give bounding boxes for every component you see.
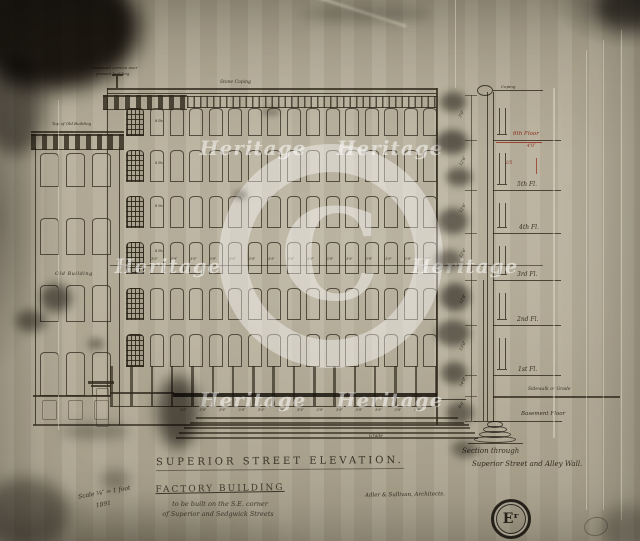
first-floor-line — [33, 395, 111, 397]
sill-line — [110, 406, 437, 407]
pilaster — [313, 366, 316, 406]
window — [306, 196, 320, 228]
bay-dim: 3'9″ — [385, 258, 392, 262]
window-note: 8 lts — [155, 120, 163, 124]
section-sill — [497, 134, 507, 135]
window — [287, 288, 301, 320]
old-window — [40, 218, 59, 255]
stain — [446, 168, 472, 186]
window — [404, 288, 418, 320]
bay-dim: 3'9″ — [317, 409, 324, 413]
section-basement-line — [474, 421, 562, 422]
window — [365, 150, 379, 182]
window — [306, 288, 320, 320]
column-shaft — [96, 388, 109, 427]
dim-value: 9'0″ — [458, 400, 466, 409]
crease — [455, 0, 456, 88]
window — [365, 108, 379, 136]
lintel-light — [110, 392, 174, 394]
dim-tick — [465, 140, 477, 141]
window — [209, 334, 223, 367]
dim-tick — [465, 190, 477, 191]
bay-dim: 3'9″ — [219, 409, 226, 413]
old-window — [66, 285, 85, 322]
grade-line — [33, 424, 469, 426]
window-detailed — [126, 334, 144, 367]
section-title-line1: Section through — [462, 448, 519, 456]
step-line — [184, 427, 470, 429]
pilaster — [354, 366, 357, 406]
footing-step — [474, 436, 516, 443]
window — [189, 196, 203, 228]
section-sill — [497, 319, 507, 320]
pilaster — [272, 366, 275, 406]
window — [170, 334, 184, 367]
old-left-edge — [35, 147, 36, 425]
window — [228, 108, 242, 136]
section-window-line — [499, 108, 500, 134]
elevation-title: Superior Street Elevation. — [156, 455, 404, 471]
bay-dim: 3'9″ — [151, 258, 158, 262]
lintel-heavy — [173, 393, 437, 397]
old-window — [92, 285, 111, 322]
window — [248, 196, 262, 228]
bay-dim: 3'9″ — [210, 258, 217, 262]
section-floor-line — [493, 233, 561, 234]
cornice-dentils — [187, 96, 437, 108]
window — [404, 150, 418, 182]
footing-step — [479, 431, 511, 438]
step-line — [176, 437, 478, 439]
crease — [621, 30, 622, 520]
window — [228, 196, 242, 228]
window — [365, 288, 379, 320]
bay-dim: 3'9″ — [297, 409, 304, 413]
old-right-edge — [119, 147, 120, 425]
top-note-line1: Proposed cornice over — [92, 66, 137, 70]
crease — [603, 40, 604, 510]
window — [170, 288, 184, 320]
window — [423, 150, 437, 182]
stain — [60, 424, 130, 438]
bay-dim: 3'9″ — [346, 258, 353, 262]
window — [228, 288, 242, 320]
old-basement-window — [42, 400, 57, 420]
section-coping-line — [493, 90, 543, 91]
stain — [595, 0, 640, 30]
dim-value: 12'6″ — [459, 156, 468, 167]
old-cornice-top-line — [31, 131, 124, 133]
pilaster — [415, 366, 418, 406]
old-window — [66, 352, 85, 396]
pilaster — [171, 366, 174, 406]
window — [404, 108, 418, 136]
window — [287, 196, 301, 228]
dim-value: 13'0″ — [459, 341, 468, 352]
pilaster — [374, 366, 377, 406]
stain — [88, 338, 104, 350]
section-sill — [497, 184, 507, 185]
window — [423, 334, 437, 367]
window — [189, 108, 203, 136]
old-window — [40, 352, 59, 396]
old-window — [66, 218, 85, 255]
window — [326, 108, 340, 136]
coping-label: Coping — [501, 85, 515, 89]
section-window-line — [505, 203, 506, 227]
old-window — [92, 153, 111, 187]
dim-tick — [465, 325, 477, 326]
window — [170, 108, 184, 136]
section-window-line — [505, 108, 506, 134]
window — [189, 150, 203, 182]
window — [248, 150, 262, 182]
window — [267, 150, 281, 182]
window — [150, 288, 164, 320]
window — [228, 150, 242, 182]
step-line — [179, 432, 475, 434]
window — [326, 334, 340, 367]
window-detailed — [126, 108, 144, 136]
pilaster — [435, 366, 438, 406]
dim-tick — [465, 396, 477, 397]
bay-dim: 3'9″ — [414, 409, 421, 413]
dim-chain — [471, 95, 472, 421]
red-tick — [536, 158, 537, 174]
window — [345, 334, 359, 367]
dim-value: 12'8″ — [459, 293, 468, 304]
red-dim-label: 4'0″ — [527, 145, 536, 150]
floor6-label-red: 6th Floor — [513, 131, 539, 137]
window-note: 8 lts — [155, 250, 163, 254]
window-note: 8 lts — [155, 162, 163, 166]
pencil-mark — [582, 515, 609, 539]
section-floor-line — [493, 280, 561, 281]
bay-dim: 3'9″ — [356, 409, 363, 413]
floor5-label: 5th Fl. — [517, 182, 537, 189]
window — [423, 288, 437, 320]
dim-value: 12'6″ — [459, 202, 468, 213]
window — [267, 334, 281, 367]
datum-line — [110, 265, 543, 266]
pilaster — [232, 366, 235, 406]
window — [248, 288, 262, 320]
old-window — [40, 153, 59, 187]
stain — [0, 478, 70, 541]
bay-dim: 3'9″ — [424, 258, 431, 262]
window — [345, 196, 359, 228]
crease-diagonal — [253, 0, 406, 28]
window — [209, 150, 223, 182]
parapet-line — [107, 88, 437, 90]
footing-base-line — [468, 443, 523, 444]
pilaster — [394, 366, 397, 406]
window — [189, 288, 203, 320]
window — [209, 108, 223, 136]
dim-value: 3'0″ — [458, 109, 466, 118]
window-detailed — [126, 288, 144, 320]
bay-dim: 3'9″ — [405, 258, 412, 262]
window — [306, 108, 320, 136]
window — [150, 334, 164, 367]
scale-note: Scale ⅛″ = 1 foot — [78, 485, 131, 501]
dim-value: 14'0″ — [459, 376, 468, 387]
window — [384, 108, 398, 136]
old-building-label: Old Building — [55, 272, 93, 278]
window — [209, 196, 223, 228]
window — [384, 288, 398, 320]
section-wall-thick — [483, 280, 484, 421]
section-window-line — [505, 338, 506, 369]
bay-dim: 3'9″ — [190, 258, 197, 262]
bay-dim: 3'9″ — [268, 258, 275, 262]
bay-dim: 3'9″ — [366, 258, 373, 262]
window — [170, 150, 184, 182]
floor4-label: 4th Fl. — [519, 225, 539, 232]
bay-dim: 3'9″ — [249, 258, 256, 262]
window — [306, 334, 320, 367]
window — [228, 334, 242, 367]
section-floor-line — [493, 190, 561, 191]
window — [326, 150, 340, 182]
pilaster — [110, 366, 113, 406]
window — [209, 288, 223, 320]
pilaster — [212, 366, 215, 406]
window-detailed — [126, 196, 144, 228]
floor2-label: 2nd Fl. — [517, 317, 538, 324]
window — [170, 196, 184, 228]
window — [150, 196, 164, 228]
red-dim-line — [496, 142, 542, 143]
project-subtitle-1: to be built on the S.E. corner — [125, 500, 315, 508]
window — [306, 150, 320, 182]
bay-dim: 3'9″ — [180, 409, 187, 413]
section-sill — [497, 274, 507, 275]
window — [423, 108, 437, 136]
section-title-line2: Superior Street and Alley Wall. — [472, 461, 582, 469]
footing-step — [487, 421, 503, 428]
bay-dim: 3'9″ — [229, 258, 236, 262]
crease — [586, 50, 587, 510]
column-abacus — [91, 385, 111, 387]
window — [384, 196, 398, 228]
window — [365, 334, 379, 367]
dim-tick — [465, 95, 477, 96]
pilaster — [293, 366, 296, 406]
section-floor-line — [493, 375, 561, 376]
footing-step — [483, 426, 507, 433]
window — [345, 108, 359, 136]
window — [345, 150, 359, 182]
old-cornice-checker — [31, 134, 124, 150]
section-window-line — [505, 246, 506, 274]
window — [326, 196, 340, 228]
section-window-line — [499, 153, 500, 184]
section-wall-inner — [493, 92, 494, 422]
bay-dim: 3'9″ — [288, 258, 295, 262]
window-detailed — [126, 150, 144, 182]
window — [248, 334, 262, 367]
section-floor-line — [493, 325, 561, 326]
window-note: 8 lts — [155, 205, 163, 209]
dim-value: 12'6″ — [459, 247, 468, 258]
dim-tick — [465, 280, 477, 281]
window — [248, 108, 262, 136]
architect-signature: Adler & Sullivan, Architects. — [365, 491, 445, 498]
window — [326, 288, 340, 320]
window — [150, 150, 164, 182]
bay-dim: 3'9″ — [239, 409, 246, 413]
window — [384, 150, 398, 182]
section-window-line — [499, 203, 500, 227]
window — [345, 288, 359, 320]
window — [287, 150, 301, 182]
section-window-line — [499, 246, 500, 274]
section-window-line — [505, 153, 506, 184]
bay-dim: 3'9″ — [327, 258, 334, 262]
old-basement-window — [68, 400, 83, 420]
collection-stamp: Eʳ — [491, 499, 531, 539]
old-window — [66, 153, 85, 187]
bay-dim: 3'9″ — [171, 258, 178, 262]
section-floor-line — [493, 140, 561, 141]
stain — [0, 0, 140, 90]
pilaster — [333, 366, 336, 406]
window — [287, 334, 301, 367]
window — [267, 196, 281, 228]
drawing-sheet: Proposed cornice over present building S… — [0, 0, 640, 541]
project-subtitle-2: of Superior and Sedgwick Streets — [123, 510, 313, 518]
window — [189, 334, 203, 367]
section-window-line — [499, 338, 500, 369]
window — [423, 196, 437, 228]
cornice-sketch-post — [116, 76, 118, 88]
window — [365, 196, 379, 228]
window — [267, 288, 281, 320]
sidewalk-label: Sidewalk or Grade — [528, 388, 570, 393]
stain — [436, 130, 468, 154]
old-window — [92, 218, 111, 255]
dim-tick — [465, 421, 477, 422]
bay-dim: 3'9″ — [395, 409, 402, 413]
dim-tick — [465, 375, 477, 376]
dim-tick — [465, 233, 477, 234]
window — [287, 108, 301, 136]
project-title: Factory Building — [130, 482, 310, 495]
floor1-label: 1st Fl. — [518, 367, 537, 374]
window-detailed — [126, 242, 144, 274]
bay-dim: 3'9″ — [278, 409, 285, 413]
pilaster — [191, 366, 194, 406]
crease — [58, 100, 59, 430]
window — [404, 196, 418, 228]
scale-date: 1891 — [96, 501, 112, 510]
section-window-line — [505, 293, 506, 319]
step-line — [196, 417, 458, 419]
section-coping-profile — [477, 85, 493, 96]
window — [404, 334, 418, 367]
bay-dim: 3'9″ — [336, 409, 343, 413]
stone-coping-label: Stone Coping — [220, 81, 251, 86]
section-sill — [497, 369, 507, 370]
old-window — [40, 285, 59, 322]
pilaster — [151, 366, 154, 406]
floor3-label: 3rd Fl. — [517, 272, 537, 279]
section-grade-line — [493, 396, 620, 398]
window — [267, 108, 281, 136]
bay-dim: 3'9″ — [258, 409, 265, 413]
section-wall-outer — [487, 92, 489, 422]
section-sill — [497, 227, 507, 228]
red-fraction-label: 2/5 — [505, 162, 512, 167]
bay-dim: 3'9″ — [200, 409, 207, 413]
section-window-line — [499, 293, 500, 319]
pilaster — [130, 366, 133, 406]
coping-line — [107, 93, 437, 94]
crease — [553, 88, 555, 438]
bay-dim: 3'9″ — [307, 258, 314, 262]
basement-label: Basement Floor — [521, 411, 565, 417]
bay-dim: 3'9″ — [375, 409, 382, 413]
pilaster — [252, 366, 255, 406]
window — [384, 334, 398, 367]
